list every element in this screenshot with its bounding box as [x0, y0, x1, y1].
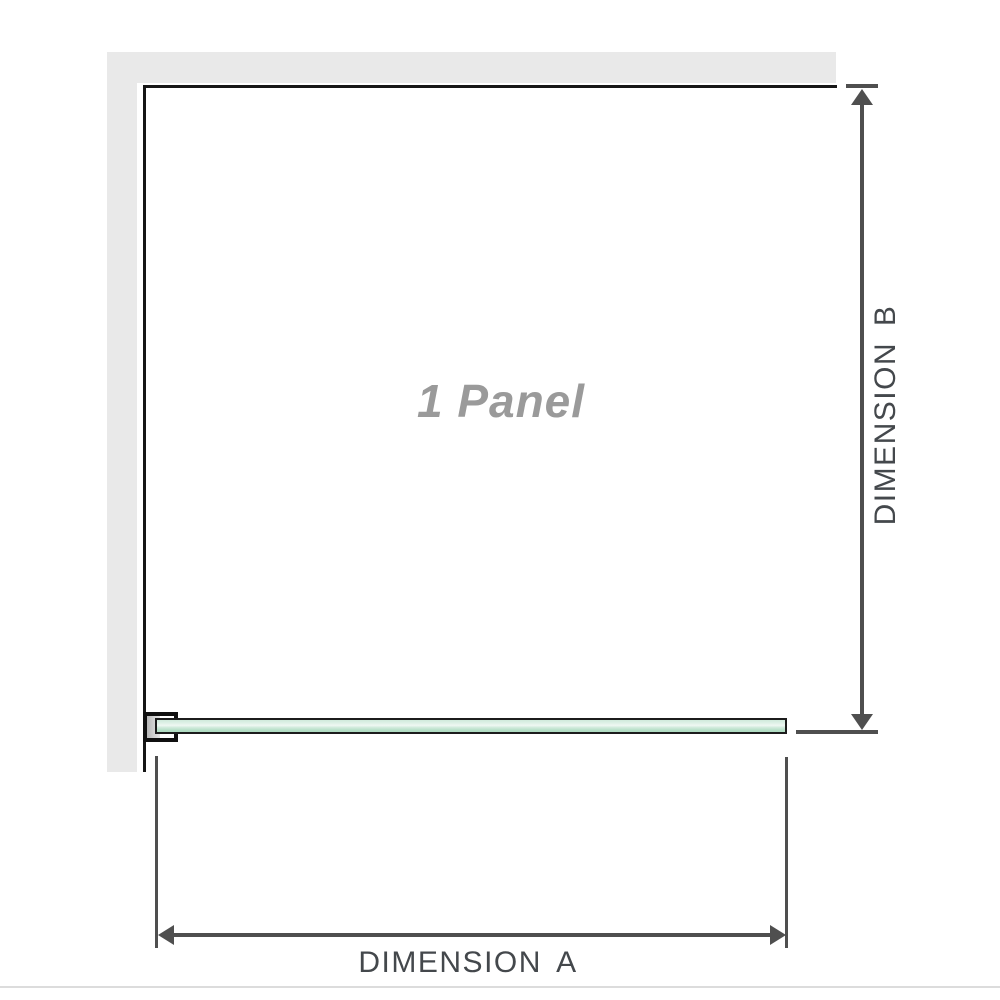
dimension-b-line — [860, 92, 864, 716]
glass-panel-bar — [155, 718, 787, 734]
panel-left-edge — [143, 85, 146, 772]
dimension-a-label: DIMENSION A — [316, 946, 620, 980]
panel-top-edge — [143, 85, 837, 88]
dimension-a-right-extension — [785, 757, 788, 948]
arrow-up-icon — [851, 89, 873, 105]
dimension-b-label: DIMENSION B — [869, 305, 903, 526]
dimension-a-left-extension — [155, 756, 158, 948]
dimension-a-line — [170, 933, 776, 937]
footer-rule — [0, 986, 1000, 988]
dimension-b-top-tick — [846, 84, 878, 88]
arrow-down-icon — [851, 714, 873, 730]
shower-panel-dimension-diagram: 1 Panel DIMENSION B DIMENSION A — [0, 0, 1000, 1000]
panel-title: 1 Panel — [351, 374, 651, 428]
wall-top-bar — [107, 52, 836, 83]
arrow-left-icon — [158, 925, 174, 945]
arrow-right-icon — [770, 925, 786, 945]
dimension-b-bottom-tick — [796, 730, 878, 734]
wall-left-bar — [107, 52, 137, 772]
